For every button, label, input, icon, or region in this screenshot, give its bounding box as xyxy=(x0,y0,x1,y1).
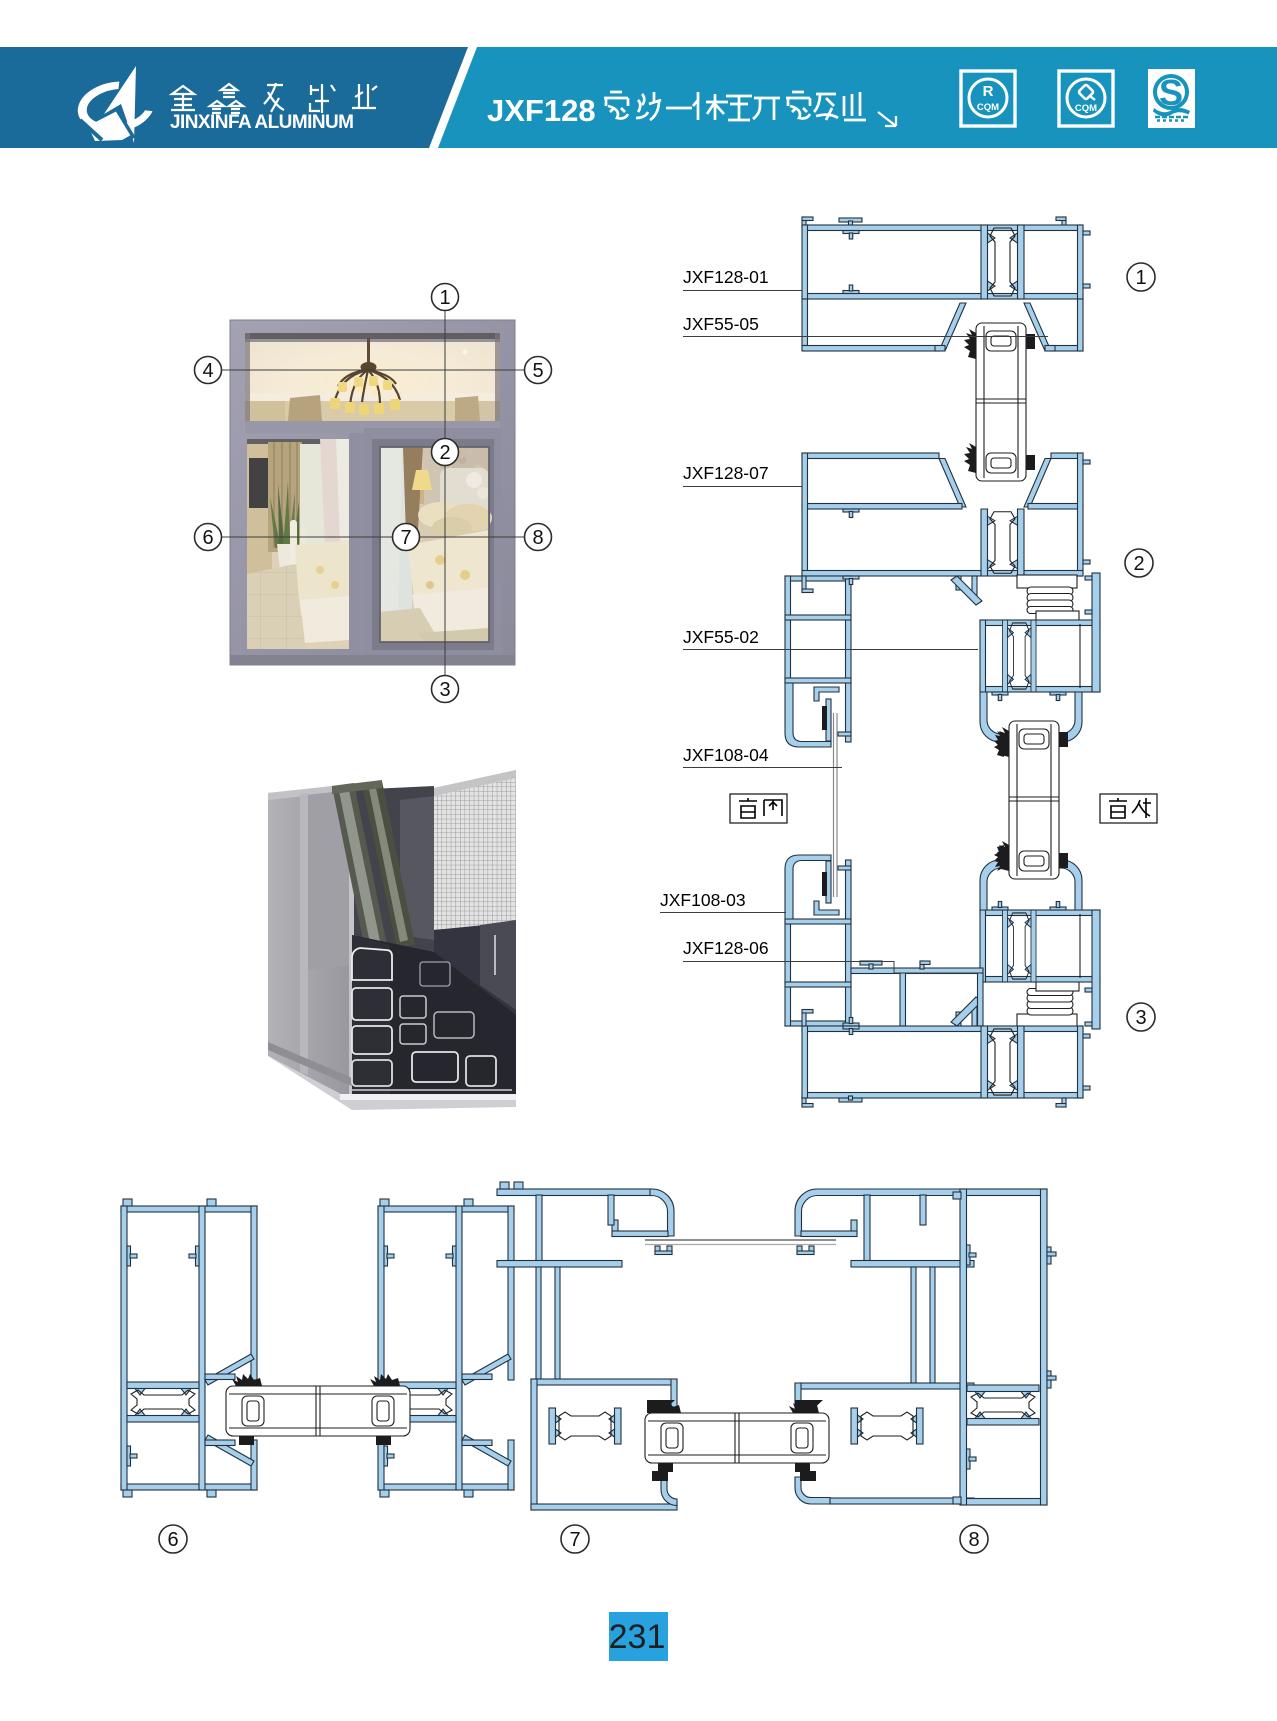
svg-text:2: 2 xyxy=(1133,553,1144,575)
svg-text:JXF55-02: JXF55-02 xyxy=(683,627,759,647)
svg-text:4: 4 xyxy=(202,360,213,382)
svg-text:231: 231 xyxy=(609,1618,666,1656)
svg-text:7: 7 xyxy=(400,527,411,549)
svg-text:1: 1 xyxy=(1135,267,1146,289)
svg-text:JINXINFA ALUMINUM: JINXINFA ALUMINUM xyxy=(170,112,354,133)
svg-text:1: 1 xyxy=(439,287,450,309)
svg-text:3: 3 xyxy=(439,679,450,701)
svg-text:3: 3 xyxy=(1135,1007,1146,1029)
svg-text:6: 6 xyxy=(202,527,213,549)
svg-text:7: 7 xyxy=(569,1529,580,1551)
svg-text:CQM: CQM xyxy=(1075,103,1097,114)
svg-text:R: R xyxy=(983,83,994,100)
svg-text:JXF128: JXF128 xyxy=(487,93,596,128)
svg-text:S: S xyxy=(1159,72,1183,113)
svg-text:6: 6 xyxy=(167,1529,178,1551)
svg-text:2: 2 xyxy=(439,442,450,464)
svg-text:5: 5 xyxy=(532,360,543,382)
svg-text:JXF128-07: JXF128-07 xyxy=(683,463,769,483)
svg-text:JXF128-06: JXF128-06 xyxy=(683,938,769,958)
svg-text:8: 8 xyxy=(532,527,543,549)
svg-text:CQM: CQM xyxy=(977,102,999,113)
svg-text:JXF108-04: JXF108-04 xyxy=(683,745,769,765)
svg-text:JXF55-05: JXF55-05 xyxy=(683,314,759,334)
svg-text:JXF128-01: JXF128-01 xyxy=(683,267,769,287)
svg-text:JXF108-03: JXF108-03 xyxy=(660,890,746,910)
svg-text:8: 8 xyxy=(968,1529,979,1551)
